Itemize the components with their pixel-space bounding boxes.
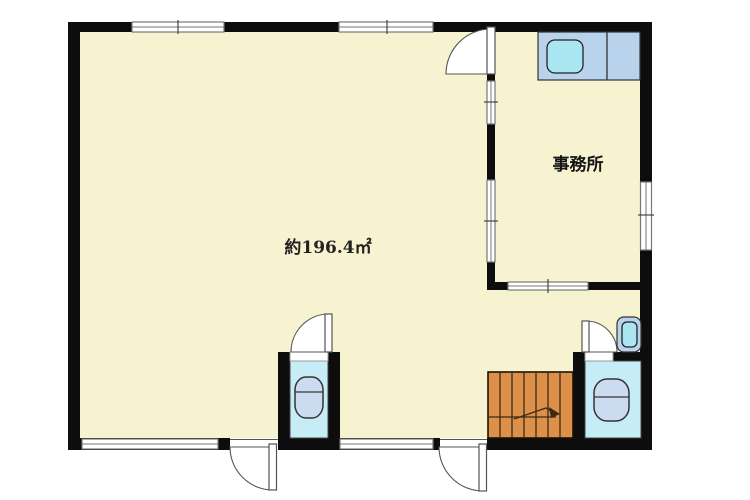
door-entrance-left <box>230 444 277 490</box>
window-bottom-center <box>340 439 433 449</box>
window-top-center <box>339 20 433 34</box>
hand-wash-basin-icon <box>617 317 641 352</box>
window-bottom-left <box>82 439 218 449</box>
area-label: 約196.4㎡ <box>284 237 371 258</box>
wc-center-left-wall <box>278 352 290 438</box>
floor-plan: 約196.4㎡ 事務所 <box>0 0 750 500</box>
kitchen-sink-basin <box>547 40 583 73</box>
wc-right-left-wall <box>573 352 585 438</box>
wall-left <box>68 22 80 450</box>
kitchen-sink-counter-icon <box>538 32 640 80</box>
wc-center-right-wall <box>328 352 340 438</box>
wc-center-threshold <box>290 352 328 361</box>
toilet-center-icon <box>295 377 323 418</box>
window-right-office <box>638 182 654 250</box>
floor-plan-page: 約196.4㎡ 事務所 <box>0 0 750 500</box>
toilet-right-icon <box>594 379 629 421</box>
office-label: 事務所 <box>553 154 604 175</box>
staircase <box>488 372 573 438</box>
wc-right-threshold <box>585 352 613 361</box>
door-entrance-right <box>439 444 487 491</box>
window-top-left <box>132 20 224 34</box>
